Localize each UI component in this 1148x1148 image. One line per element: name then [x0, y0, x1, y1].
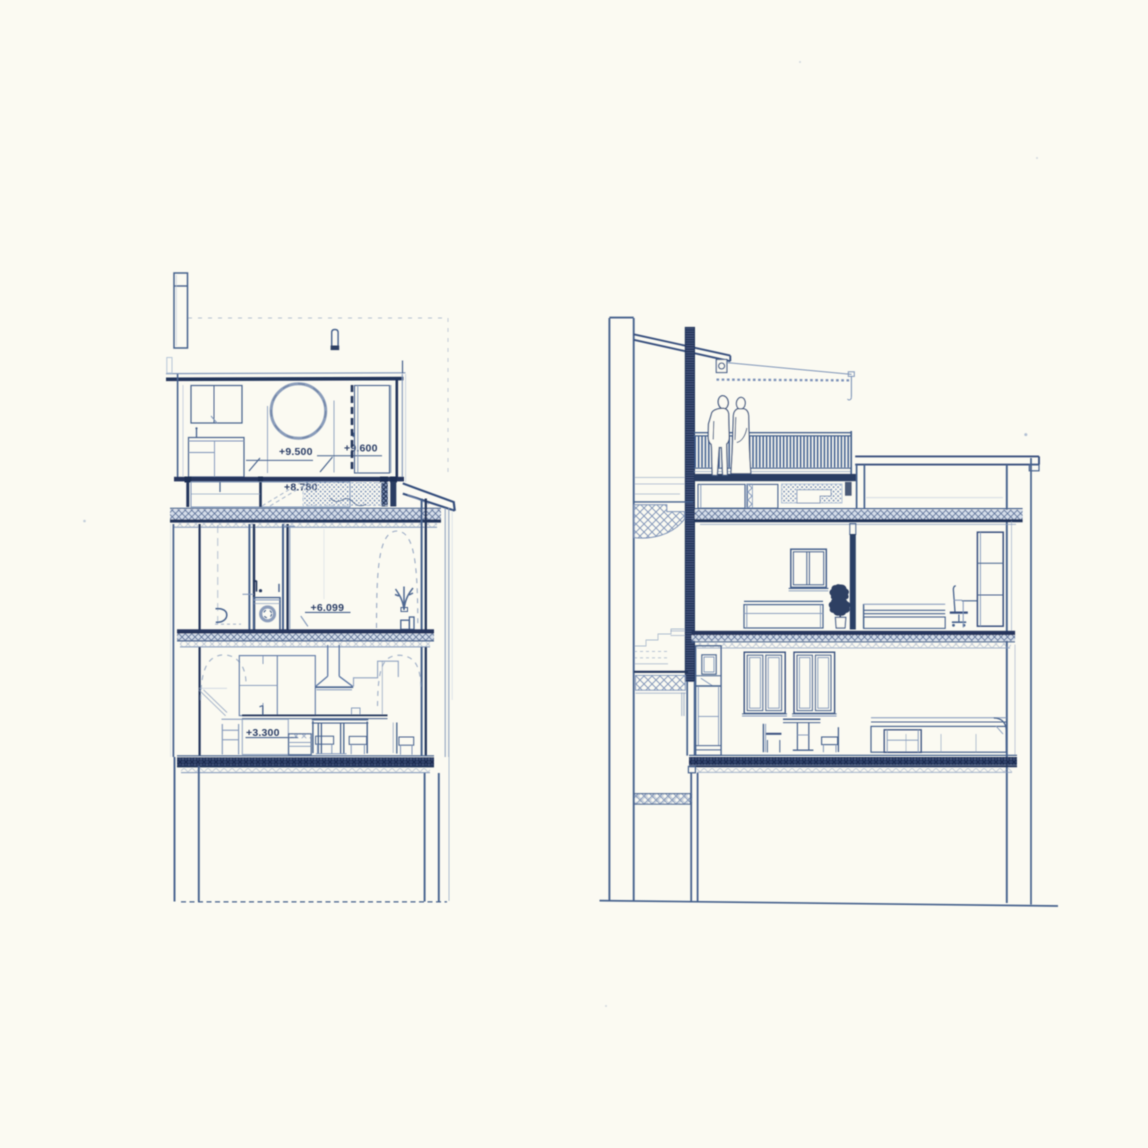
svg-text:+9.600: +9.600 — [344, 443, 378, 455]
svg-text:+3.300: +3.300 — [246, 727, 280, 739]
svg-text:+9.500: +9.500 — [279, 446, 313, 458]
